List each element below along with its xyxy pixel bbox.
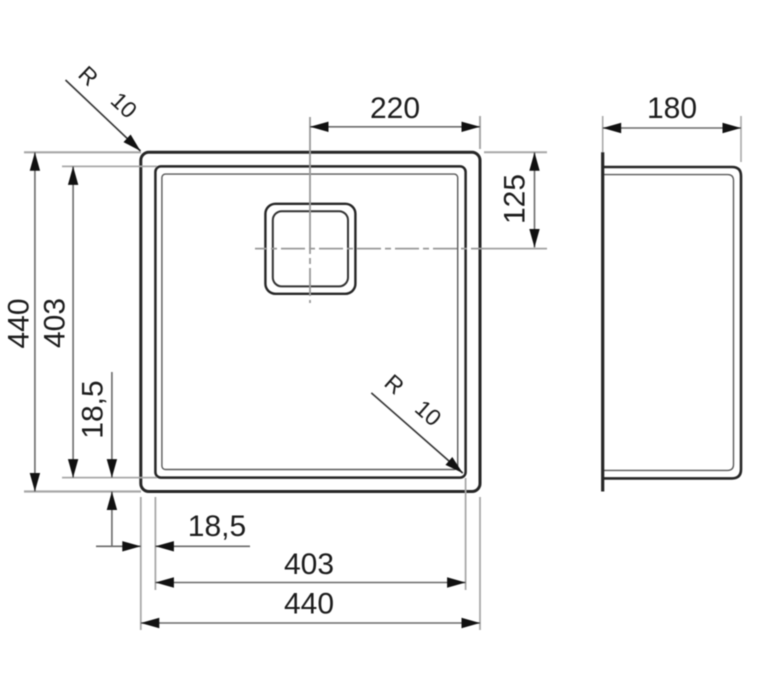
svg-text:403: 403 [39,298,72,348]
svg-text:440: 440 [3,298,36,348]
svg-text:18,5: 18,5 [77,380,110,438]
svg-text:440: 440 [284,588,334,621]
svg-text:180: 180 [647,92,697,125]
svg-text:10: 10 [106,87,142,123]
svg-text:125: 125 [499,174,532,224]
svg-text:220: 220 [370,92,420,125]
svg-text:18,5: 18,5 [188,510,246,543]
svg-text:R: R [73,61,103,91]
svg-text:403: 403 [284,548,334,581]
